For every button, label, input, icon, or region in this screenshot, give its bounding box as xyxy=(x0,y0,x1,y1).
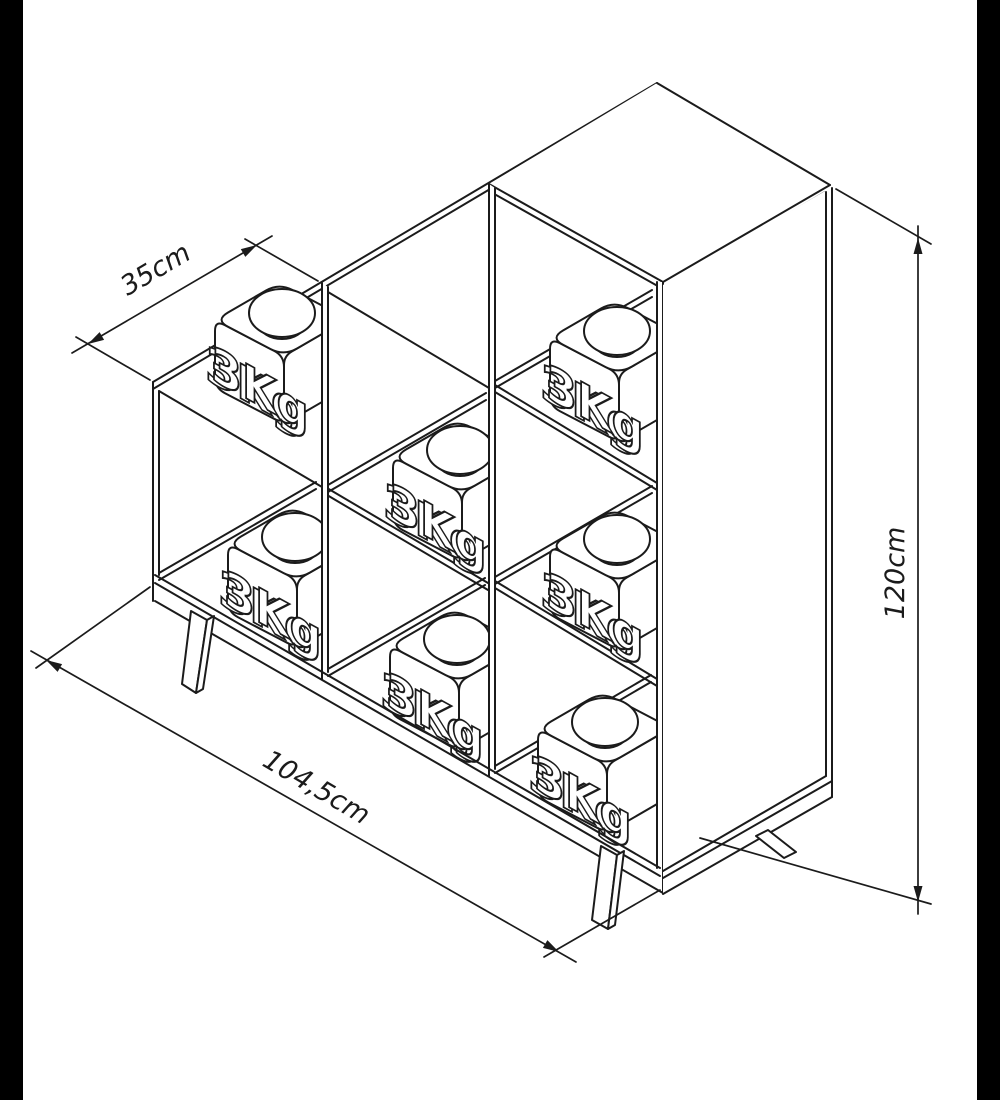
right-frame-bar xyxy=(977,0,1000,1100)
left-frame-bar xyxy=(0,0,23,1100)
knob-icon xyxy=(584,307,650,355)
knob-icon xyxy=(424,615,490,663)
knob-icon xyxy=(584,515,650,563)
shelf-unit-diagram: 3Kg3Kg3Kg3Kg3Kg3Kg3Kg3Kg3Kg3Kg3Kg3Kg3Kg3… xyxy=(0,0,1000,1100)
partition-wall-right xyxy=(489,184,495,776)
knob-icon xyxy=(262,513,328,561)
tall-column-front-right-edge xyxy=(657,282,663,892)
knob-icon xyxy=(572,698,638,746)
knob-icon xyxy=(427,426,493,474)
furniture-technical-drawing: 3Kg3Kg3Kg3Kg3Kg3Kg3Kg3Kg3Kg3Kg3Kg3Kg3Kg3… xyxy=(0,0,1000,1100)
height-label: 120cm xyxy=(880,527,911,620)
partition-wall-middle xyxy=(322,283,328,679)
canvas-background xyxy=(0,0,1000,1100)
right-side-panel xyxy=(663,187,832,895)
knob-icon xyxy=(249,289,315,337)
